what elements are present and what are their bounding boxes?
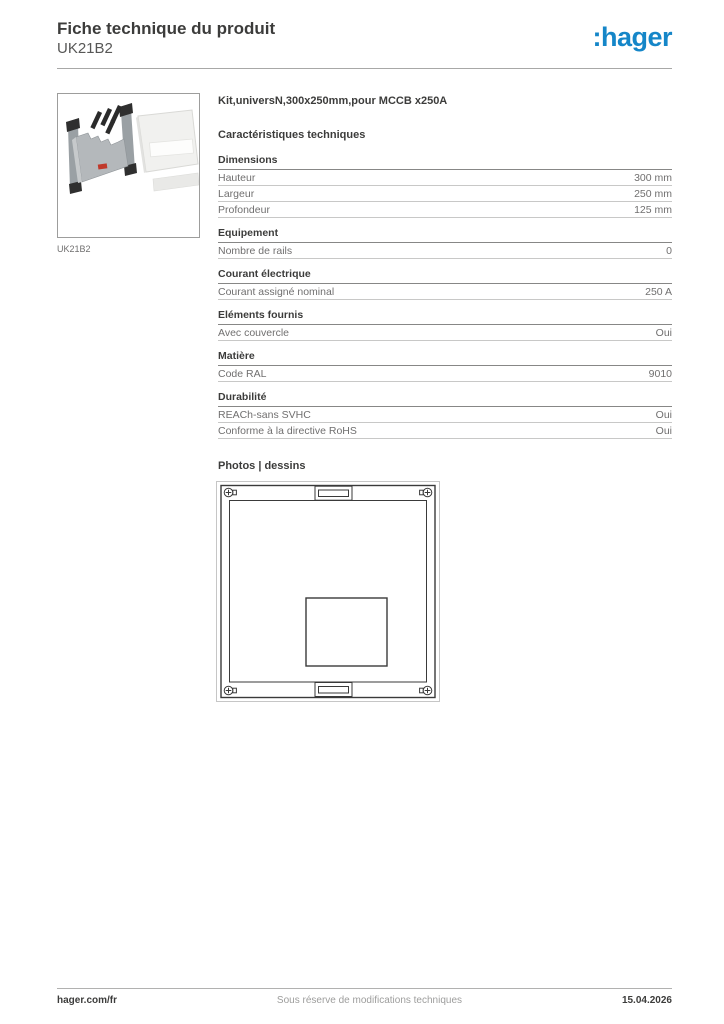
screw-bottom-left-icon bbox=[224, 686, 236, 695]
header-divider bbox=[57, 68, 672, 69]
spec-section: Eléments fournisAvec couvercleOui bbox=[218, 309, 672, 341]
mounting-plate-shape bbox=[72, 133, 128, 183]
bottom-tab-shape bbox=[315, 683, 352, 697]
header: Fiche technique du produit UK21B2 :hager bbox=[57, 19, 672, 58]
spec-row: REACh-sans SVHCOui bbox=[218, 407, 672, 423]
characteristics-heading: Caractéristiques techniques bbox=[218, 129, 672, 141]
main-content: UK21B2 Kit,universN,300x250mm,pour MCCB … bbox=[57, 93, 672, 707]
spec-row: Nombre de rails0 bbox=[218, 243, 672, 259]
product-photo-icon bbox=[58, 94, 199, 237]
spec-section: EquipementNombre de rails0 bbox=[218, 227, 672, 259]
footer-website-link[interactable]: hager.com/fr bbox=[57, 995, 117, 1006]
spec-row: Hauteur300 mm bbox=[218, 170, 672, 186]
product-reference: UK21B2 bbox=[57, 40, 672, 58]
technical-drawing-icon bbox=[216, 481, 440, 702]
cover-strip-shape bbox=[153, 173, 199, 191]
spec-row: Code RAL9010 bbox=[218, 366, 672, 382]
spec-row: Profondeur125 mm bbox=[218, 202, 672, 218]
screw-top-left-icon bbox=[224, 488, 236, 497]
screws-shape bbox=[90, 105, 122, 134]
product-image-column: UK21B2 bbox=[57, 93, 200, 707]
spec-section-title: Eléments fournis bbox=[218, 309, 672, 325]
footer-date: 15.04.2026 bbox=[622, 995, 672, 1006]
datasheet-page: Fiche technique du produit UK21B2 :hager bbox=[0, 0, 724, 1024]
spec-row-label: Nombre de rails bbox=[218, 245, 292, 257]
spec-section-title: Dimensions bbox=[218, 154, 672, 170]
spec-column: Kit,universN,300x250mm,pour MCCB x250A C… bbox=[218, 93, 672, 707]
top-tab-shape bbox=[315, 486, 352, 500]
photos-heading: Photos | dessins bbox=[218, 460, 672, 472]
spec-section: DimensionsHauteur300 mmLargeur250 mmProf… bbox=[218, 154, 672, 218]
hager-logo: :hager bbox=[592, 22, 672, 53]
technical-drawing bbox=[216, 481, 672, 707]
screw-bottom-right-icon bbox=[420, 686, 432, 695]
spec-row: Avec couvercleOui bbox=[218, 325, 672, 341]
product-photo-frame bbox=[57, 93, 200, 238]
spec-row: Courant assigné nominal250 A bbox=[218, 284, 672, 300]
spec-row-label: REACh-sans SVHC bbox=[218, 409, 311, 421]
spec-section-title: Equipement bbox=[218, 227, 672, 243]
product-photo-caption: UK21B2 bbox=[57, 244, 200, 254]
spec-row-value: 250 mm bbox=[624, 188, 672, 200]
spec-row-label: Largeur bbox=[218, 188, 254, 200]
spec-row-value: 300 mm bbox=[624, 172, 672, 184]
spec-row-value: Oui bbox=[646, 409, 672, 421]
spec-row-label: Conforme à la directive RoHS bbox=[218, 425, 357, 437]
spec-row-label: Hauteur bbox=[218, 172, 255, 184]
spec-section-title: Matière bbox=[218, 350, 672, 366]
spec-row-value: 0 bbox=[656, 245, 672, 257]
mccb-cutout-shape bbox=[306, 598, 387, 666]
spec-section: MatièreCode RAL9010 bbox=[218, 350, 672, 382]
footer-disclaimer: Sous réserve de modifications techniques bbox=[117, 995, 622, 1006]
spec-section: DurabilitéREACh-sans SVHCOuiConforme à l… bbox=[218, 391, 672, 439]
spec-row-label: Profondeur bbox=[218, 204, 270, 216]
spec-row-value: 125 mm bbox=[624, 204, 672, 216]
sections: DimensionsHauteur300 mmLargeur250 mmProf… bbox=[218, 154, 672, 439]
spec-section-title: Durabilité bbox=[218, 391, 672, 407]
spec-row-value: Oui bbox=[646, 327, 672, 339]
spec-row-label: Courant assigné nominal bbox=[218, 286, 334, 298]
product-designation: Kit,universN,300x250mm,pour MCCB x250A bbox=[218, 95, 672, 107]
spec-section: Courant électriqueCourant assigné nomina… bbox=[218, 268, 672, 300]
spec-section-title: Courant électrique bbox=[218, 268, 672, 284]
spec-row-label: Avec couvercle bbox=[218, 327, 289, 339]
footer: hager.com/fr Sous réserve de modificatio… bbox=[57, 995, 672, 1006]
spec-row: Largeur250 mm bbox=[218, 186, 672, 202]
spec-row: Conforme à la directive RoHSOui bbox=[218, 423, 672, 439]
cover-plate-shape bbox=[136, 110, 198, 173]
spec-row-value: 250 A bbox=[635, 286, 672, 298]
spec-row-value: Oui bbox=[646, 425, 672, 437]
page-title: Fiche technique du produit bbox=[57, 19, 672, 39]
screw-top-right-icon bbox=[420, 488, 432, 497]
footer-divider bbox=[57, 988, 672, 989]
spec-row-value: 9010 bbox=[639, 368, 672, 380]
spec-row-label: Code RAL bbox=[218, 368, 266, 380]
